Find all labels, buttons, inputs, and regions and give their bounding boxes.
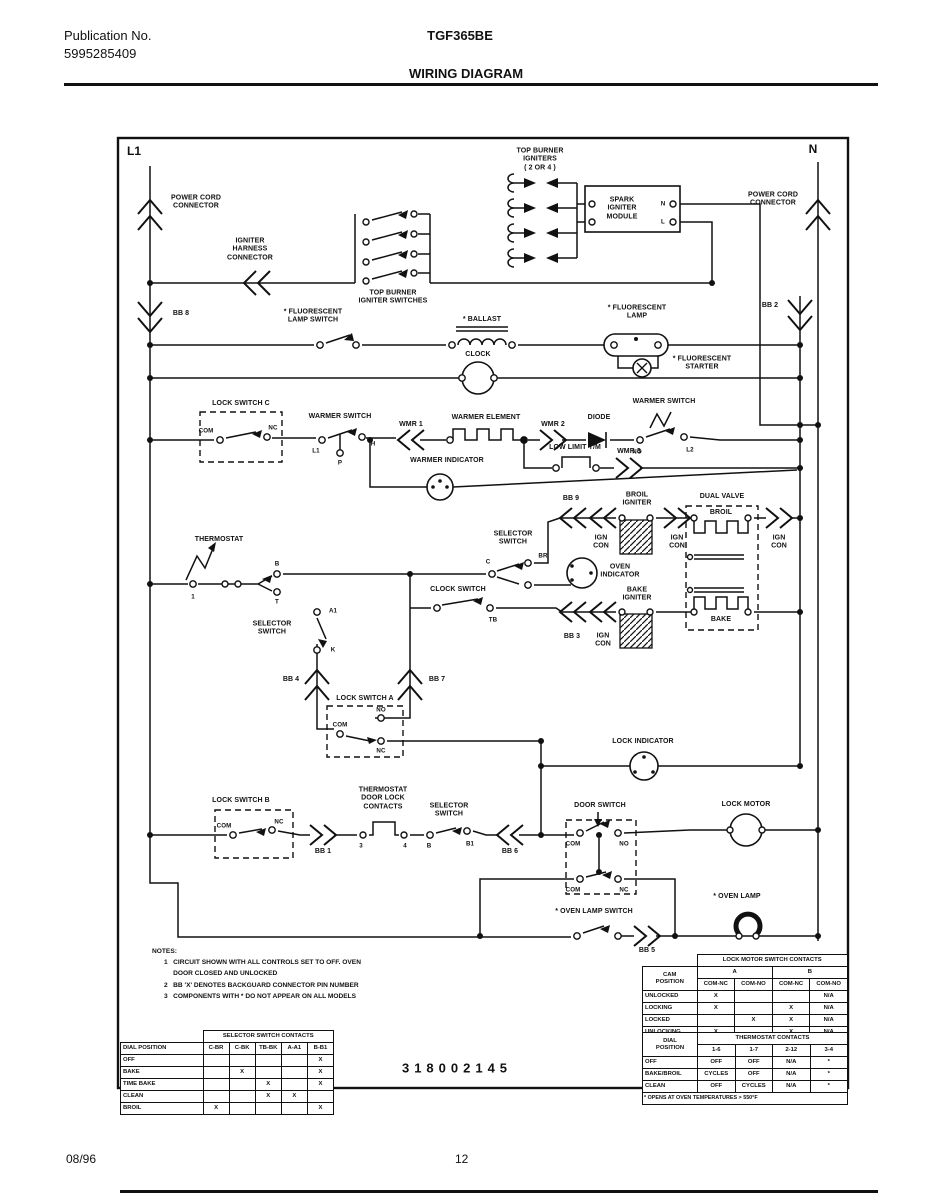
diagram-part-number: 318002145 [402,1061,512,1076]
table-row: BAKE X X [121,1067,334,1079]
cell: * [810,1057,848,1069]
table-row: BROIL X X [121,1103,334,1115]
spark-module-terminal-n: N [661,201,666,208]
cell: * [810,1069,848,1081]
label-ign-con-valve-exit: IGN CON [771,535,787,552]
cell: N/A [810,991,848,1003]
label-fluorescent-starter: * FLUORESCENT STARTER [673,356,731,373]
terminal-4: 4 [403,843,407,850]
column-header: 1-7 [735,1045,773,1057]
cell [229,1091,255,1103]
label-bb6: BB 6 [502,848,518,856]
lock-switch-b-box [215,810,293,858]
cell: X [229,1067,255,1079]
label-valve-broil: BROIL [709,509,733,517]
cell [203,1079,229,1091]
label-power-cord-connector-left: POWER CORD CONNECTOR [171,195,221,212]
cell: OFF [698,1057,736,1069]
label-spark-igniter-module: SPARK IGNITER MODULE [607,196,638,221]
cell: OFF [735,1057,773,1069]
warmer-switch-l1: L1 [312,448,319,455]
terminal-tb: TB [489,617,497,624]
cell [255,1055,281,1067]
row-name: CLEAN [121,1091,204,1103]
label-top-burner-igniters: TOP BURNER IGNITERS ( 2 OR 4 ) [516,147,563,172]
footer-date: 08/96 [66,1152,96,1166]
column-header: COM-NC [772,979,810,991]
cell [281,1079,307,1091]
cell: X [697,1003,735,1015]
column-header: COM-NO [735,979,773,991]
cell [255,1103,281,1115]
label-selector-switch-right: SELECTOR SWITCH [494,531,533,548]
lock-switch-b-com: COM [217,823,232,830]
cell [307,1091,333,1103]
lock-motor-body [730,814,762,846]
thermostat-contacts-table: DIAL POSITION THERMOSTAT CONTACTS 1-6 1-… [642,1032,848,1105]
table-title: SELECTOR SWITCH CONTACTS [203,1031,334,1043]
label-bb1: BB 1 [315,848,331,856]
table-row: OFF X [121,1055,334,1067]
label-door-switch: DOOR SWITCH [574,802,626,810]
label-fluorescent-lamp: * FLUORESCENT LAMP [608,305,666,322]
column-header: CAM POSITION [643,967,698,991]
row-name: CLEAN [643,1081,698,1093]
label-low-limit: LOW LIMIT T/M [549,444,601,452]
cell: X [735,1015,773,1027]
lock-switch-a-com: COM [333,722,348,729]
label-wmr1: WMR 1 [399,421,423,429]
lock-switch-c-com: COM [199,428,214,435]
manual-page: Publication No. 5995285409 TGF365BE WIRI… [0,0,940,1200]
spacer-cell [643,955,698,967]
label-oven-lamp-switch: * OVEN LAMP SWITCH [555,908,633,916]
label-oven-lamp: * OVEN LAMP [713,893,760,901]
row-name: TIME BAKE [121,1079,204,1091]
cell: X [281,1091,307,1103]
cell: N/A [773,1081,811,1093]
terminal-b1: B1 [466,841,474,848]
door-switch-no: NO [619,841,628,848]
column-header: COM-NO [810,979,848,991]
door-switch-com-top: COM [566,841,581,848]
igniter-blocks [620,520,652,648]
label-bake-igniter: BAKE IGNITER [622,587,651,604]
circuit-wires [150,162,818,941]
cell [203,1091,229,1103]
cell: X [307,1103,333,1115]
cell: OFF [735,1069,773,1081]
cell: X [255,1079,281,1091]
column-header: 3-4 [810,1045,848,1057]
column-header: DIAL POSITION [643,1033,698,1057]
column-header: C-BK [229,1043,255,1055]
column-header: A-A1 [281,1043,307,1055]
label-lock-switch-c: LOCK SWITCH C [212,400,270,408]
oven-lamp-loop [736,914,760,934]
table-footnote: * OPENS AT OVEN TEMPERATURES > 550°F [643,1093,848,1105]
cell: X [307,1067,333,1079]
table-title: LOCK MOTOR SWITCH CONTACTS [697,955,848,967]
dashed-enclosures [200,412,758,894]
cell: CYCLES [735,1081,773,1093]
door-switch-box [566,820,636,894]
label-bb4: BB 4 [283,676,299,684]
warmer-switch-p: P [338,460,342,467]
row-name: BROIL [121,1103,204,1115]
label-dual-valve: DUAL VALVE [700,493,745,501]
table-row: OFF OFF OFF N/A * [643,1057,848,1069]
cell: X [255,1091,281,1103]
label-fluorescent-lamp-switch: * FLUORESCENT LAMP SWITCH [284,309,342,326]
table-title-row: LOCK MOTOR SWITCH CONTACTS [643,955,848,967]
column-header: COM-NC [697,979,735,991]
row-name: BAKE [121,1067,204,1079]
notes-block: NOTES: 1 CIRCUIT SHOWN WITH ALL CONTROLS… [152,946,361,1002]
label-power-cord-connector-right: POWER CORD CONNECTOR [748,192,798,209]
label-clock-switch: CLOCK SWITCH [430,586,486,594]
table-row: LOCKED X X N/A [643,1015,848,1027]
cell: OFF [698,1081,736,1093]
label-bb3: BB 3 [564,633,580,641]
label-warmer-switch-left: WARMER SWITCH [309,413,372,421]
label-wmr2: WMR 2 [541,421,565,429]
selector-switch-contacts-table: SELECTOR SWITCH CONTACTS DIAL POSITION C… [120,1030,334,1115]
column-header: B-B1 [307,1043,333,1055]
terminal-t: T [275,599,279,606]
cell [229,1079,255,1091]
label-warmer-element: WARMER ELEMENT [452,414,521,422]
note-item: 1 CIRCUIT SHOWN WITH ALL CONTROLS SET TO… [164,957,361,979]
cell [735,991,773,1003]
cell: X [307,1055,333,1067]
note-item: 3 COMPONENTS WITH * DO NOT APPEAR ON ALL… [164,991,361,1002]
column-header: C-BR [203,1043,229,1055]
cell [281,1055,307,1067]
table-row: TIME BAKE X X [121,1079,334,1091]
cell [735,1003,773,1015]
cell: N/A [810,1015,848,1027]
column-header: TB-BK [255,1043,281,1055]
label-oven-indicator: OVEN INDICATOR [600,564,639,581]
table-row: UNLOCKED X N/A [643,991,848,1003]
label-bb9: BB 9 [563,495,579,503]
label-top-burner-igniter-switches: TOP BURNER IGNITER SWITCHES [359,290,428,307]
label-lock-indicator: LOCK INDICATOR [612,738,673,746]
door-switch-nc: NC [619,887,628,894]
row-name: OFF [643,1057,698,1069]
table-row: CLEAN OFF CYCLES N/A * [643,1081,848,1093]
bake-igniter-block [620,614,652,648]
label-ign-con-bake: IGN CON [595,633,611,650]
label-ign-con-broil-right: IGN CON [669,535,685,552]
notes-title: NOTES: [152,946,361,957]
column-header: DIAL POSITION [121,1043,204,1055]
label-ign-con-broil-left: IGN CON [593,535,609,552]
label-diode: DIODE [588,414,611,422]
warmer-switch-h: H [371,441,376,448]
label-bb7: BB 7 [429,676,445,684]
cell: N/A [773,1057,811,1069]
lock-switch-a-nc: NC [376,748,385,755]
table-header-row: DIAL POSITION C-BR C-BK TB-BK A-A1 B-B1 [121,1043,334,1055]
label-igniter-harness-connector: IGNITER HARNESS CONNECTOR [227,237,273,262]
row-name: UNLOCKED [643,991,698,1003]
label-thermostat: THERMOSTAT [195,536,244,544]
label-bb2: BB 2 [762,302,778,310]
bus-label-l1: L1 [127,144,141,158]
cell: N/A [773,1069,811,1081]
lock-motor-switch-contacts-table: LOCK MOTOR SWITCH CONTACTS CAM POSITION … [642,954,848,1039]
table-title-row: SELECTOR SWITCH CONTACTS [121,1031,334,1043]
row-name: LOCKING [643,1003,698,1015]
cell [281,1103,307,1115]
group-header: A [697,967,772,979]
thermostat-terminal-1: 1 [191,594,195,601]
label-warmer-switch-right: WARMER SWITCH [633,398,696,406]
column-header: 1-6 [698,1045,736,1057]
table-header-row: CAM POSITION A B [643,967,848,979]
cell [772,991,810,1003]
cell: X [772,1015,810,1027]
label-lock-switch-b: LOCK SWITCH B [212,797,270,805]
spacer-cell [121,1031,204,1043]
table-footnote-row: * OPENS AT OVEN TEMPERATURES > 550°F [643,1093,848,1105]
label-wmr3: WMR 3 [617,448,641,456]
row-name: OFF [121,1055,204,1067]
warmer-indicator-body [427,474,453,500]
label-clock: CLOCK [465,351,490,359]
terminal-b-bottom: B [427,843,432,850]
column-header: 2-12 [773,1045,811,1057]
cell: X [203,1103,229,1115]
label-lock-switch-a: LOCK SWITCH A [336,695,393,703]
lock-switch-a-no: NO [376,707,385,714]
footer-page-number: 12 [455,1152,468,1166]
clock-body [462,362,494,394]
cell [229,1103,255,1115]
terminal-3: 3 [359,843,363,850]
label-ballast: * BALLAST [463,316,501,324]
group-header: B [772,967,847,979]
lock-switch-c-nc: NC [268,425,277,432]
terminal-circles [190,201,765,939]
terminal-b: B [275,561,280,568]
cell [203,1055,229,1067]
bus-label-n: N [809,142,818,156]
cell: CYCLES [698,1069,736,1081]
label-selector-switch-bottom: SELECTOR SWITCH [430,803,469,820]
table-row: LOCKING X X N/A [643,1003,848,1015]
row-name: BAKE/BROIL [643,1069,698,1081]
warmer-switch-l2: L2 [686,447,693,454]
cell [697,1015,735,1027]
cell: X [772,1003,810,1015]
cell: X [307,1079,333,1091]
label-warmer-indicator: WARMER INDICATOR [410,457,484,465]
cell: X [697,991,735,1003]
footer-rule [120,1190,878,1193]
table-row: CLEAN X X [121,1091,334,1103]
broil-igniter-block [620,520,652,554]
switch-arms [186,174,757,933]
label-thermostat-door-lock: THERMOSTAT DOOR LOCK CONTACTS [359,786,408,811]
table-title: THERMOSTAT CONTACTS [698,1033,848,1045]
label-valve-bake: BAKE [710,616,732,624]
cell [203,1067,229,1079]
lock-switch-b-nc: NC [274,819,283,826]
cell: * [810,1081,848,1093]
row-name: LOCKED [643,1015,698,1027]
cell [229,1055,255,1067]
terminal-k: K [331,647,336,654]
terminal-br: BR [538,553,547,560]
label-selector-switch-left: SELECTOR SWITCH [253,621,292,638]
terminal-c: C [486,559,491,566]
label-broil-igniter: BROIL IGNITER [622,492,651,509]
cell: N/A [810,1003,848,1015]
cell [281,1067,307,1079]
table-row: BAKE/BROIL CYCLES OFF N/A * [643,1069,848,1081]
table-header-row: DIAL POSITION THERMOSTAT CONTACTS [643,1033,848,1045]
spark-module-terminal-l: L [661,219,665,226]
label-bb8: BB 8 [173,310,189,318]
note-item: 2 BB 'X' DENOTES BACKGUARD CONNECTOR PIN… [164,980,361,991]
label-lock-motor: LOCK MOTOR [722,801,771,809]
cell [255,1067,281,1079]
door-switch-com-bottom: COM [566,887,581,894]
terminal-a1: A1 [329,608,337,615]
